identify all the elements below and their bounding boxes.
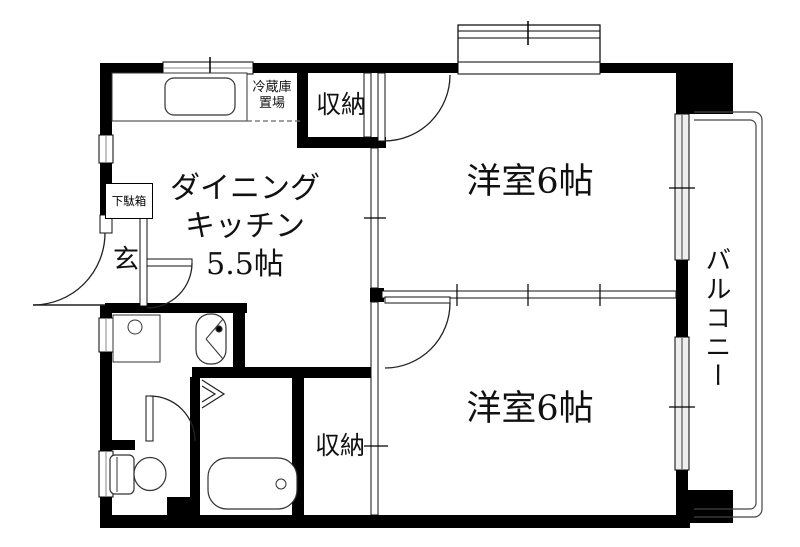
dining-kitchen-label-line1: ダイニング <box>140 170 350 208</box>
toilet-bowl <box>134 458 166 491</box>
bath-folding-door-outer <box>202 380 224 408</box>
entrance-label: 玄 <box>109 246 143 276</box>
balcony-label: バルコニー <box>700 238 730 398</box>
dining-kitchen-label: ダイニング キッチン 5.5帖 <box>140 170 350 284</box>
western-room-lower-label: 洋室6帖 <box>425 389 635 429</box>
wall-toilet-top-stub <box>107 440 135 450</box>
wall-corner-bottomright <box>688 490 733 523</box>
wall-bathroom-left <box>190 377 200 518</box>
wall-top-2 <box>253 63 458 73</box>
shoe-cabinet-label: 下駄箱 <box>112 193 147 209</box>
wall-washroom-right <box>233 307 245 367</box>
toilet-tank <box>110 455 134 494</box>
bath-folding-door-inner <box>202 386 215 402</box>
wall-bathroom-top <box>192 367 373 378</box>
closet-lower-partition <box>371 302 378 515</box>
storage-upper-label: 収納 <box>300 91 382 120</box>
wall-left-4 <box>100 352 112 451</box>
refrigerator-space-label: 冷蔵庫 置場 <box>243 80 301 112</box>
refrigerator-space-label-line1: 冷蔵庫 <box>243 80 301 96</box>
storage-lower-label: 収納 <box>299 432 381 461</box>
toilet-door-leaf <box>146 396 153 441</box>
toilet-door-arc <box>150 396 195 441</box>
shoe-cabinet: 下駄箱 <box>105 183 153 219</box>
wall-washroom-top <box>105 303 247 313</box>
wall-right-low <box>676 470 688 520</box>
thin-partitions <box>100 73 676 515</box>
wall-bottomleft-filler <box>167 497 190 518</box>
lower-room-door-leaf <box>385 297 450 303</box>
entrance-door-arc <box>33 233 105 305</box>
wall-left-1 <box>100 63 112 135</box>
dining-kitchen-label-line3: 5.5帖 <box>140 246 350 284</box>
kitchen-sink <box>165 78 235 115</box>
wall-right-mid <box>676 260 688 337</box>
wall-corner-topright <box>676 63 733 114</box>
closet-upper-door-arc <box>384 75 450 141</box>
floorplan-canvas: ダイニング キッチン 5.5帖 洋室6帖 洋室6帖 収納 収納 冷蔵庫 置場 下… <box>0 0 800 547</box>
western-room-upper-label: 洋室6帖 <box>425 162 635 202</box>
lower-room-door-arc <box>385 303 450 368</box>
dining-kitchen-label-line2: キッチン <box>140 208 350 246</box>
fixtures <box>110 73 300 509</box>
bathtub-drain <box>276 479 286 489</box>
wall-top-3 <box>600 63 676 73</box>
bay-window-sill <box>458 62 600 74</box>
wall-closet-upper-bottom <box>297 137 386 148</box>
washing-machine-drain <box>128 320 142 334</box>
refrigerator-space-label-line2: 置場 <box>243 96 301 112</box>
